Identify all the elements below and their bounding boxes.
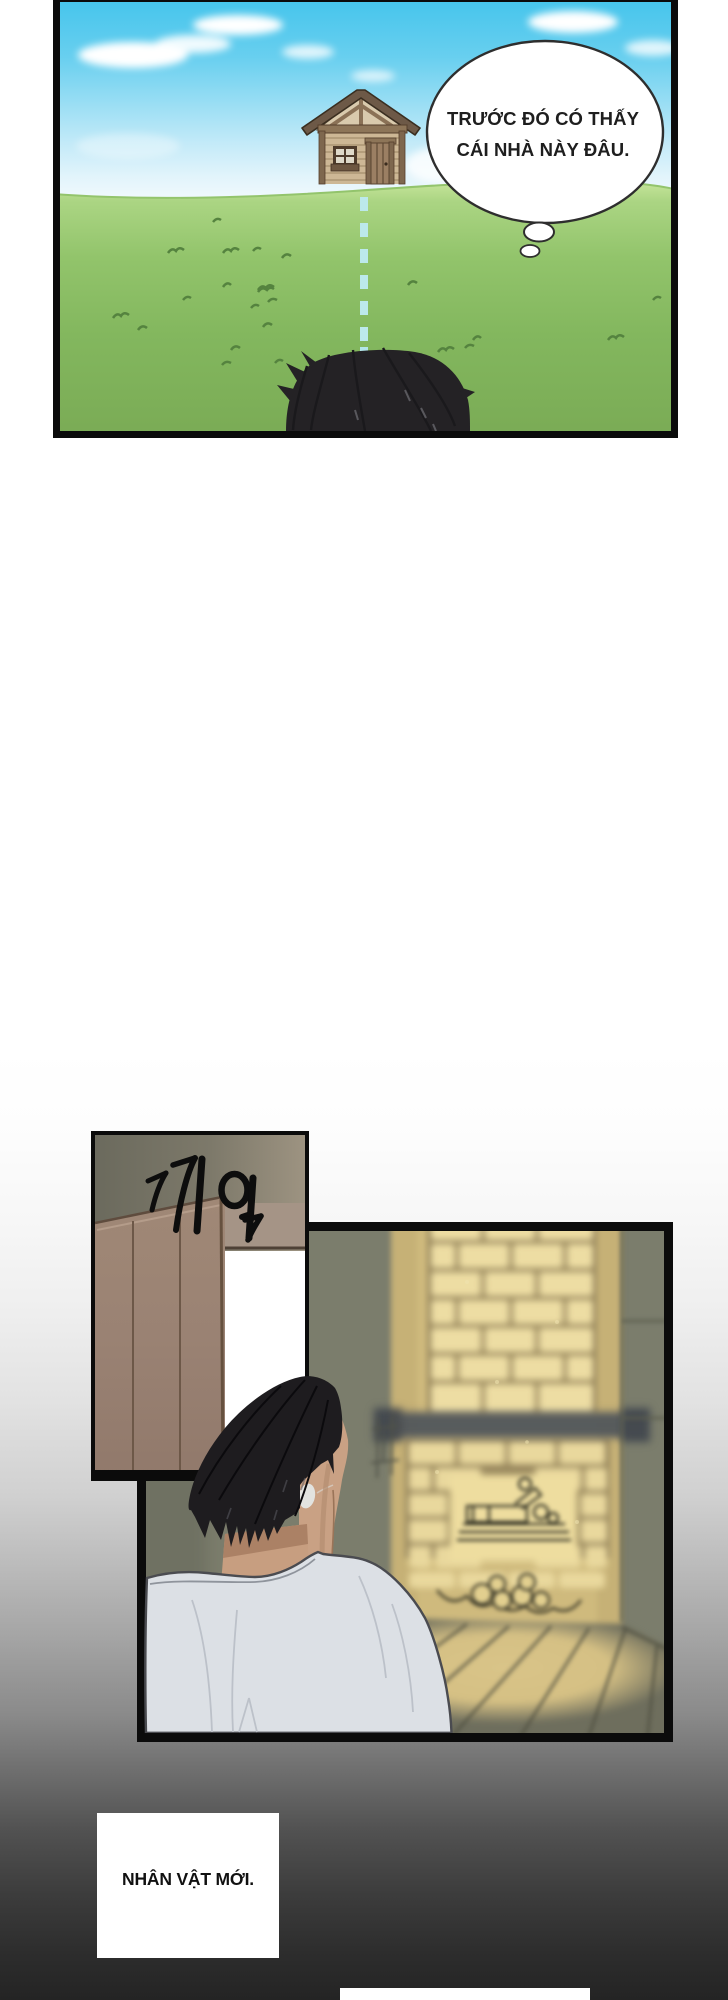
svg-text:TRƯỚC ĐÓ CÓ THẤY: TRƯỚC ĐÓ CÓ THẤY xyxy=(447,108,640,129)
svg-text:CÁI NHÀ NÀY ĐÂU.: CÁI NHÀ NÀY ĐÂU. xyxy=(457,139,630,160)
